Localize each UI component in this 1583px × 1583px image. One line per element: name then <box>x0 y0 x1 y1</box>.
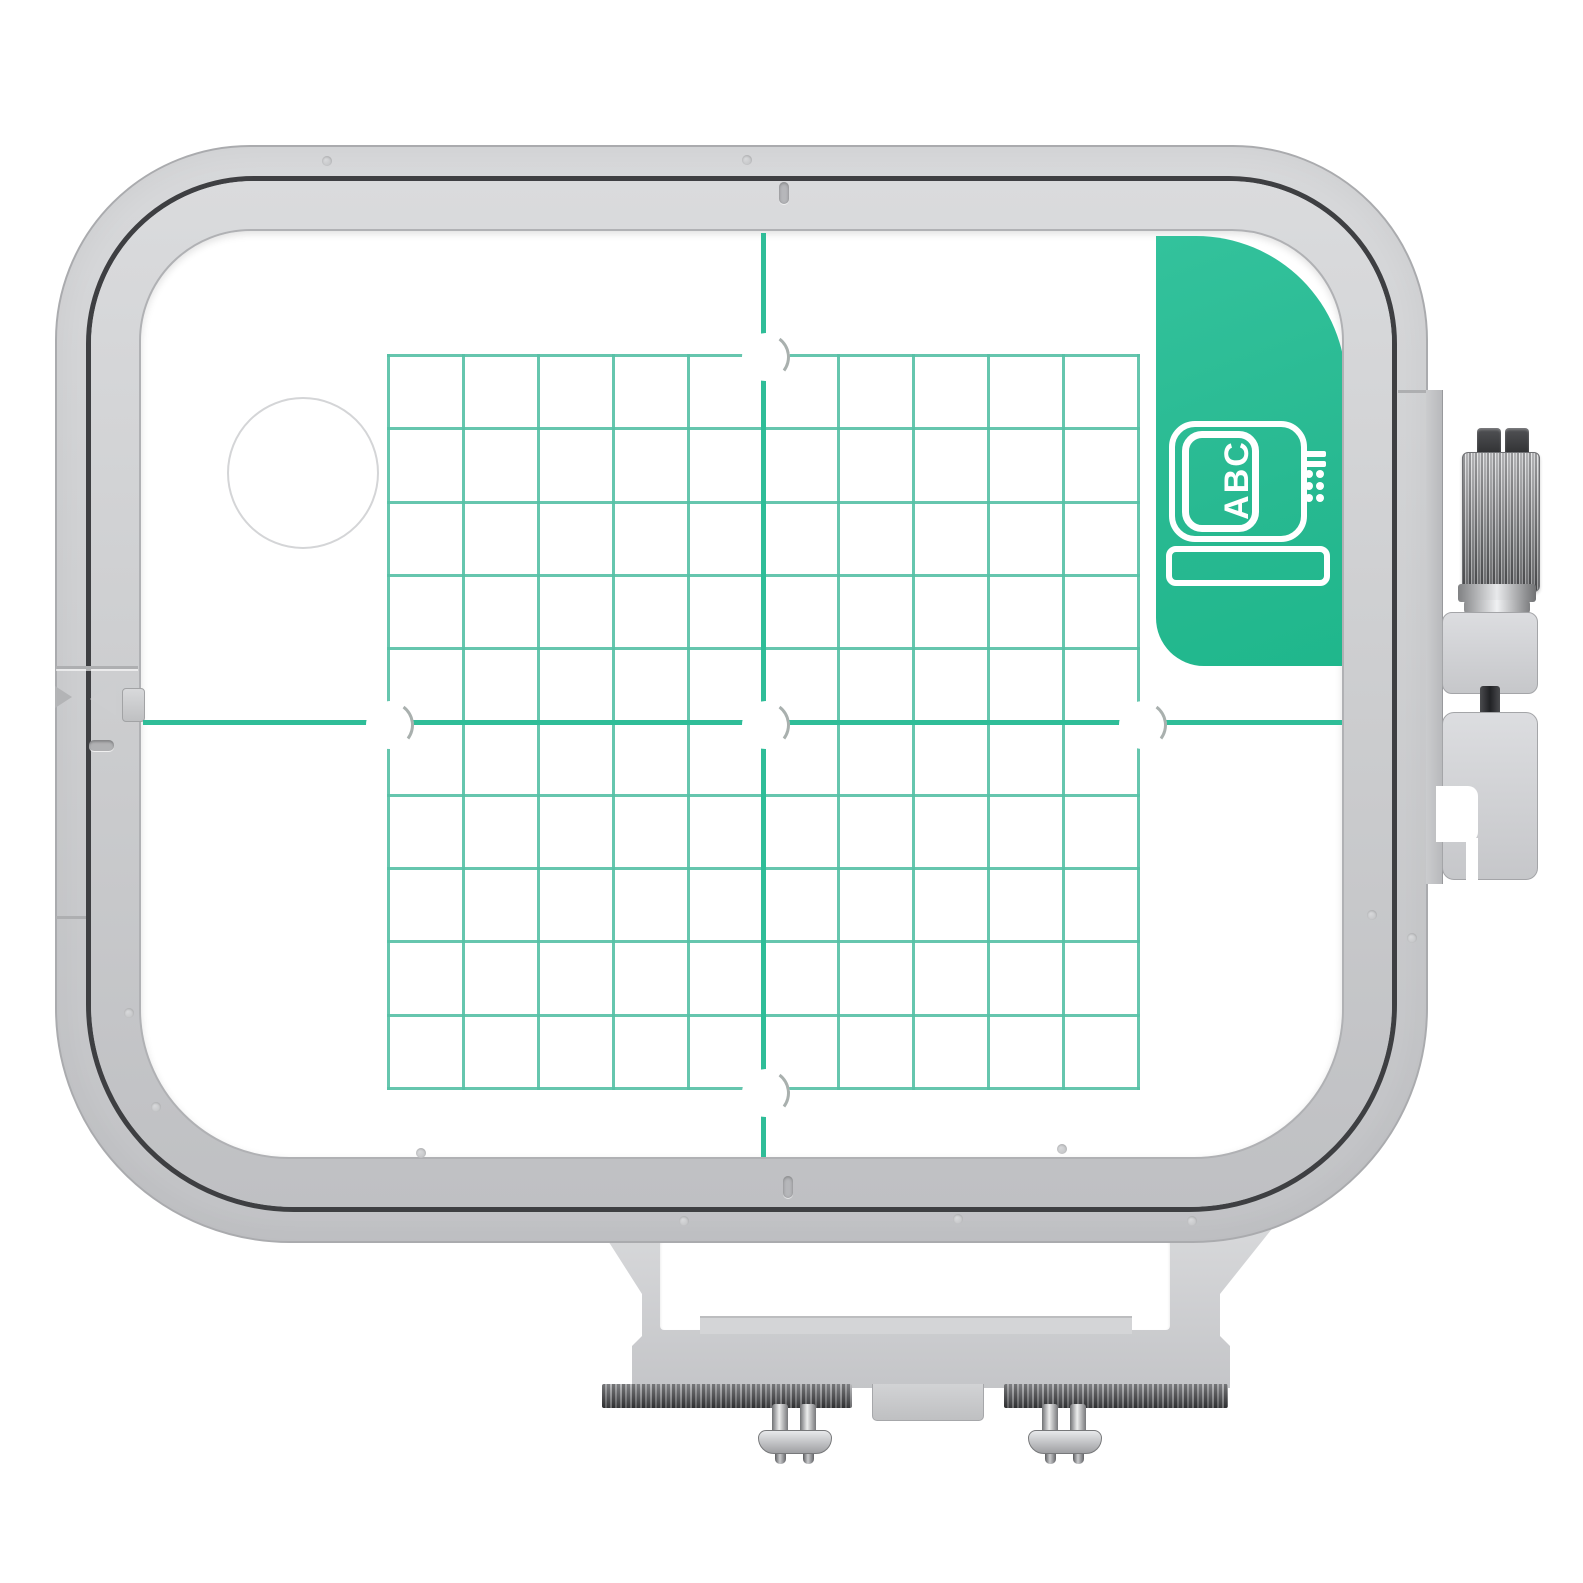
clamp-icon-dot <box>1305 494 1313 502</box>
clamp-hook-slot <box>1436 786 1478 842</box>
alignment-slot <box>89 740 114 751</box>
clamp-icon-dot <box>1316 494 1324 502</box>
clamp-icon-bar <box>1304 451 1326 457</box>
clamp-icon-dot <box>1316 482 1324 490</box>
clamp-icon-dot <box>1305 482 1313 490</box>
template-clip-nub <box>122 688 145 722</box>
product-photo: ABC <box>0 0 1583 1583</box>
clamp-hook-channel <box>1466 838 1478 884</box>
bottom-center-notch <box>783 1176 793 1198</box>
mold-dot <box>679 1216 689 1226</box>
green-corner-tab: ABC <box>1156 236 1344 666</box>
frame-seam-highlight <box>56 669 138 671</box>
template-hole <box>227 397 379 549</box>
mold-dot <box>1057 1144 1067 1154</box>
mold-dot <box>742 155 752 165</box>
clamp-upper-block <box>1442 612 1538 694</box>
thumbscrew <box>1462 452 1540 592</box>
frame-seam <box>56 916 86 919</box>
abc-label: ABC <box>1217 415 1257 545</box>
clamp-icon-dot <box>1316 470 1324 478</box>
mold-dot <box>124 1008 134 1018</box>
bracket-screw-left <box>758 1430 832 1454</box>
bracket-center-tab <box>872 1384 984 1421</box>
clamp-icon-bar <box>1304 461 1326 467</box>
clamp-icon-dot <box>1305 470 1313 478</box>
mold-dot <box>1367 910 1377 920</box>
template-sheet: ABC <box>139 229 1344 1159</box>
mold-dot <box>1187 1216 1197 1226</box>
mold-dot <box>416 1148 426 1158</box>
mold-dot <box>322 156 332 166</box>
attachment-strip-right <box>1004 1384 1228 1408</box>
carriage-bar-icon <box>1166 546 1330 586</box>
outer-frame: ABC <box>55 145 1428 1243</box>
frame-seam <box>1398 390 1428 393</box>
top-center-notch <box>779 182 789 204</box>
bracket-lip <box>700 1316 1132 1334</box>
mold-dot <box>151 1102 161 1112</box>
mold-dot <box>953 1214 963 1224</box>
bracket-screw-right <box>1028 1430 1102 1454</box>
mold-dot <box>1407 933 1417 943</box>
